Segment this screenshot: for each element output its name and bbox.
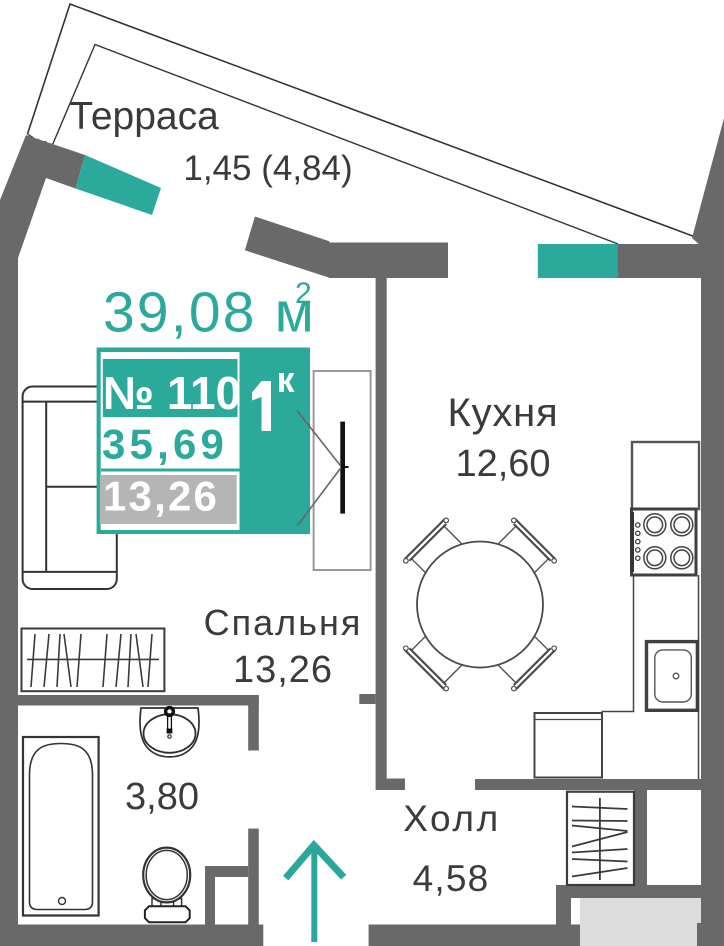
- svg-text:4,58: 4,58: [413, 858, 490, 899]
- svg-text:35,69: 35,69: [102, 421, 228, 468]
- svg-text:Кухня: Кухня: [447, 391, 558, 435]
- svg-text:13,26: 13,26: [103, 473, 219, 520]
- svg-text:39,08 м: 39,08 м: [103, 281, 316, 345]
- svg-text:3,80: 3,80: [125, 776, 199, 818]
- svg-text:Холл: Холл: [403, 798, 501, 839]
- svg-text:к: к: [276, 359, 295, 400]
- svg-text:Терраса: Терраса: [69, 95, 219, 138]
- svg-text:№ 110: № 110: [103, 367, 241, 419]
- svg-text:Спальня: Спальня: [204, 602, 363, 643]
- svg-text:13,26: 13,26: [233, 649, 333, 691]
- svg-text:12,60: 12,60: [455, 443, 550, 485]
- svg-text:1,45 (4,84): 1,45 (4,84): [183, 149, 352, 188]
- svg-text:2: 2: [295, 277, 312, 310]
